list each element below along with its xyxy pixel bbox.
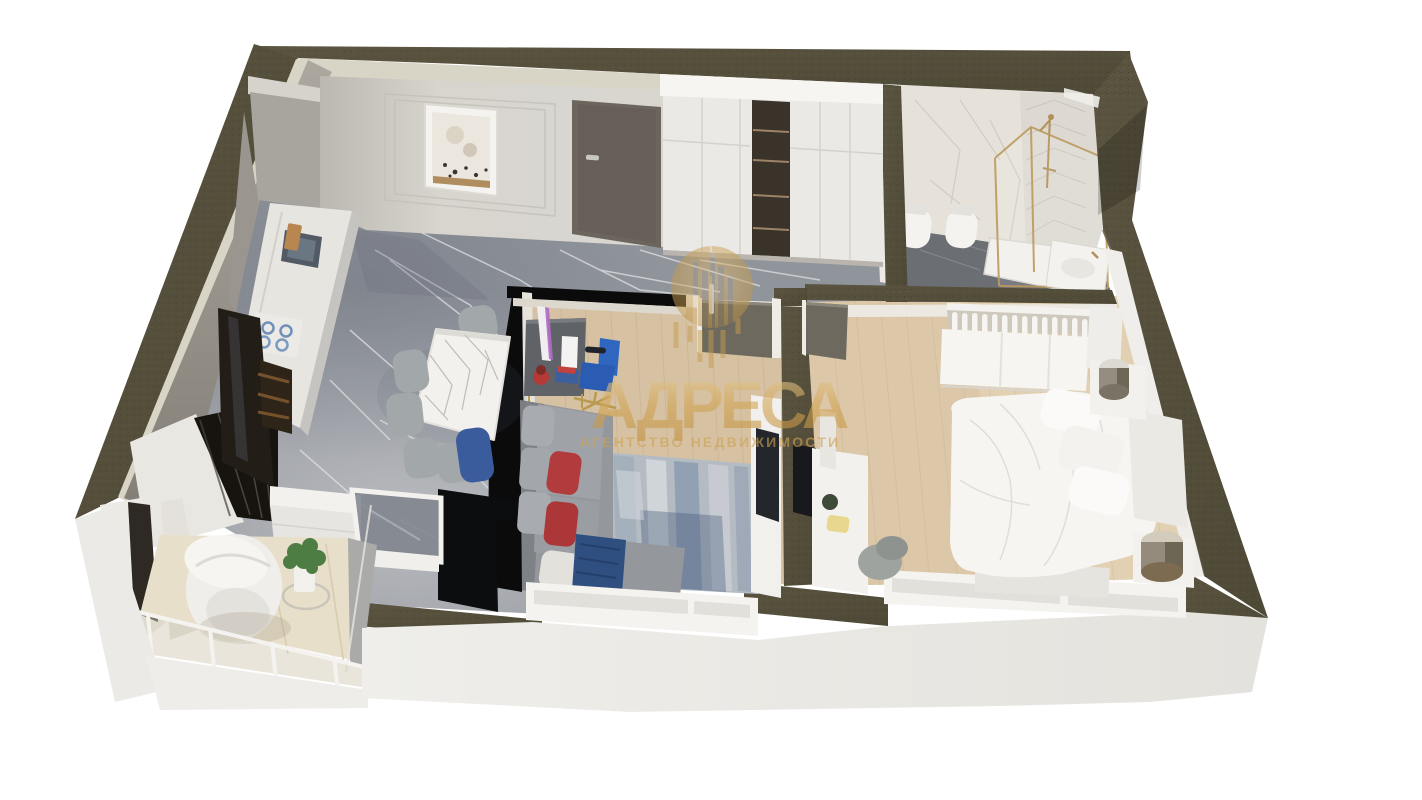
- svg-text:АГЕНТСТВО НЕДВИЖИМОСТИ: АГЕНТСТВО НЕДВИЖИМОСТИ: [580, 434, 841, 450]
- svg-text:АДРЕСА: АДРЕСА: [591, 368, 848, 442]
